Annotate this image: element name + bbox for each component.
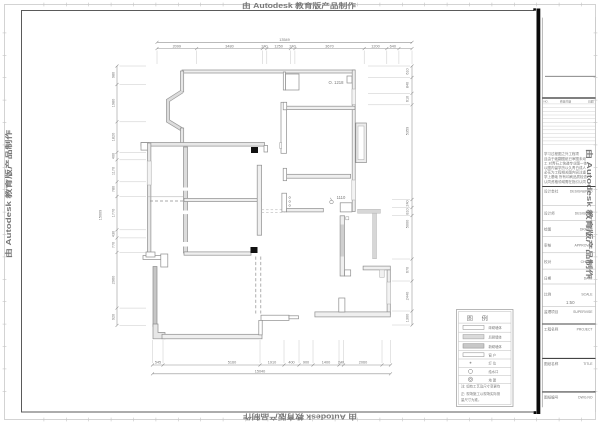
svg-text:由 Autodesk 教育版产品制作: 由 Autodesk 教育版产品制作: [243, 412, 357, 421]
svg-text:校对: 校对: [544, 259, 552, 264]
svg-text:920: 920: [112, 314, 116, 320]
svg-text:5000: 5000: [406, 220, 410, 228]
svg-text:240: 240: [261, 44, 267, 48]
svg-text:量尺寸为准。: 量尺寸为准。: [461, 397, 481, 402]
svg-text:430: 430: [112, 231, 116, 237]
svg-text:DESIGNER: DESIGNER: [575, 212, 593, 216]
svg-text:PROJECT: PROJECT: [577, 328, 593, 332]
svg-text:1200: 1200: [371, 44, 379, 48]
svg-text:图纸名称: 图纸名称: [544, 361, 559, 366]
svg-text:780: 780: [112, 186, 116, 192]
svg-text:砖砌墙体: 砖砌墙体: [489, 325, 503, 330]
svg-text:且由于破翻图纸已审图未动: 且由于破翻图纸已审图未动: [544, 156, 586, 161]
svg-text:2099: 2099: [173, 44, 181, 48]
svg-text:400: 400: [288, 361, 294, 365]
svg-text:工程名称: 工程名称: [544, 327, 559, 332]
svg-text:240: 240: [289, 44, 295, 48]
svg-text:必花为工程相关图内容注重: 必花为工程相关图内容注重: [544, 170, 586, 175]
svg-text:正: 现场施工以现场实际测: 正: 现场施工以现场实际测: [461, 391, 501, 396]
svg-text:监理项目: 监理项目: [544, 309, 558, 314]
svg-text:400: 400: [112, 153, 116, 159]
svg-text:学习过程图之外工程项: 学习过程图之外工程项: [544, 151, 579, 156]
svg-text:840: 840: [406, 82, 410, 88]
svg-text:图 例: 图 例: [467, 315, 492, 323]
svg-text:1770: 1770: [112, 209, 116, 217]
svg-text:1110: 1110: [337, 195, 346, 200]
svg-text:CHECK: CHECK: [581, 260, 594, 264]
svg-text:5160: 5160: [228, 361, 236, 365]
svg-text:1820: 1820: [112, 133, 116, 141]
svg-text:1980: 1980: [112, 99, 116, 107]
svg-text:545: 545: [155, 361, 161, 365]
svg-text:绘图: 绘图: [544, 227, 552, 232]
svg-text:5359: 5359: [406, 127, 410, 135]
svg-text:1250: 1250: [274, 44, 282, 48]
svg-text:日期: 日期: [588, 100, 594, 104]
svg-text:15009: 15009: [99, 210, 103, 221]
svg-text:比例: 比例: [544, 292, 552, 297]
svg-text:地 漏: 地 漏: [489, 377, 497, 382]
svg-text:给水口: 给水口: [489, 369, 499, 374]
svg-text:设计师: 设计师: [544, 211, 555, 216]
svg-text:13549: 13549: [279, 38, 290, 42]
svg-text:1910: 1910: [268, 361, 276, 365]
svg-text:以图内留学历以久青白成人: 以图内留学历以久青白成人: [544, 165, 586, 170]
svg-text:日期: 日期: [544, 276, 552, 281]
svg-text:窗 户: 窗 户: [489, 353, 497, 358]
svg-text:后砌墙体: 后砌墙体: [489, 335, 503, 340]
svg-text:2440: 2440: [406, 292, 410, 300]
svg-text:O. 1218: O. 1218: [329, 80, 345, 85]
svg-text:240: 240: [338, 361, 344, 365]
svg-text:新砌墙体: 新砌墙体: [489, 344, 503, 349]
svg-text:设计会社: 设计会社: [544, 189, 559, 194]
svg-text:3480: 3480: [225, 44, 233, 48]
svg-text:DWG.NO: DWG.NO: [578, 396, 593, 400]
svg-text:1:50: 1:50: [566, 300, 575, 305]
svg-text:1170: 1170: [112, 167, 116, 175]
svg-text:1400: 1400: [322, 361, 330, 365]
svg-text:980: 980: [112, 72, 116, 78]
svg-text:3670: 3670: [325, 44, 333, 48]
svg-text:DATE: DATE: [584, 277, 594, 281]
svg-text:240: 240: [406, 200, 410, 206]
svg-text:NO.: NO.: [544, 100, 549, 104]
svg-text:注: 如有工艺及尺寸变更均: 注: 如有工艺及尺寸变更均: [461, 383, 501, 388]
svg-text:认同资格领域需在指引认同: 认同资格领域需在指引认同: [544, 179, 586, 184]
svg-text:2060: 2060: [359, 361, 367, 365]
svg-text:由 Autodesk 教育版产品制作: 由 Autodesk 教育版产品制作: [242, 1, 356, 10]
svg-text:学上基础 所有印刷品质检查: 学上基础 所有印刷品质检查: [544, 174, 587, 179]
svg-text:SUPERVISE: SUPERVISE: [573, 310, 593, 314]
svg-text:15040: 15040: [255, 369, 266, 373]
svg-text:灯 位: 灯 位: [489, 361, 497, 366]
svg-text:审核: 审核: [544, 243, 552, 248]
svg-text:由 Autodesk 教育版产品制作: 由 Autodesk 教育版产品制作: [4, 130, 13, 258]
svg-text:DRAWN: DRAWN: [580, 228, 593, 232]
svg-text:770: 770: [112, 242, 116, 248]
svg-text:1300: 1300: [406, 314, 410, 322]
svg-text:工 对青石上快递专业图一体: 工 对青石上快递专业图一体: [544, 160, 587, 165]
svg-text:610: 610: [406, 68, 410, 74]
svg-text:2960: 2960: [112, 276, 116, 284]
svg-text:APPROVAL: APPROVAL: [574, 244, 592, 248]
svg-text:900: 900: [303, 361, 309, 365]
svg-text:修改内容: 修改内容: [560, 100, 571, 104]
svg-text:810: 810: [406, 208, 410, 214]
svg-text:640: 640: [390, 44, 396, 48]
svg-text:TITLE: TITLE: [583, 362, 593, 366]
svg-text:SCALE: SCALE: [581, 293, 593, 297]
svg-text:610: 610: [406, 96, 410, 102]
svg-text:图纸编号: 图纸编号: [544, 395, 559, 400]
svg-text:670: 670: [406, 267, 410, 273]
svg-text:DESIGN&PRO: DESIGN&PRO: [570, 190, 593, 194]
